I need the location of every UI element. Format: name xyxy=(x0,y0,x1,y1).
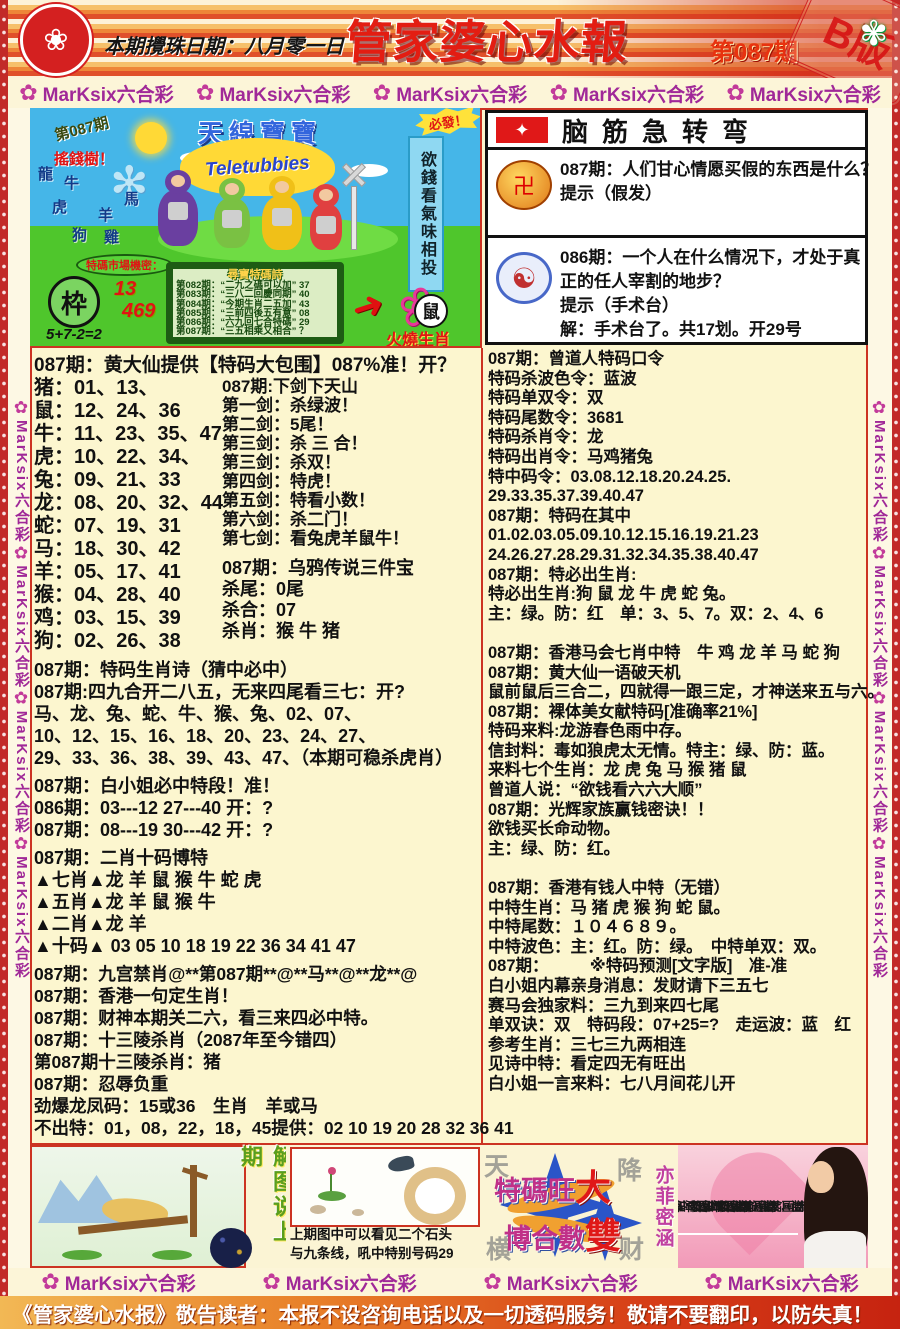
zodiac-row: 鸡：03、15、39 xyxy=(34,607,222,630)
brainteaser-item-086: ☯ 086期：一个人在什么情况下，才处于真 正的任人宰割的地步？ 提示（手术台）… xyxy=(488,238,865,345)
text-line: ▲五肖▲龙 羊 鼠 猴 牛 xyxy=(34,891,480,913)
marksix-item: ✿MarKsix六合彩 xyxy=(726,80,880,107)
text-line: 见诗中特：看定四无有旺出 xyxy=(488,1055,866,1075)
marksix-banner-bottom: ✿MarKsix六合彩 ✿MarKsix六合彩 ✿MarKsix六合彩 ✿Mar… xyxy=(8,1268,892,1296)
seal-circle: 枠 xyxy=(48,276,100,328)
text-line: 特码出肖令：马鸡猪兔 xyxy=(488,448,866,468)
flower-icon: ✿ xyxy=(870,544,889,566)
text-line: 29.33.35.37.39.40.47 xyxy=(488,487,866,507)
teletubby-belly xyxy=(168,202,188,220)
fire-zodiac-label: 火燒生肖 xyxy=(386,326,450,348)
zodiac-row: 狗：02、26、38 xyxy=(34,630,222,653)
teletubby-belly xyxy=(272,208,292,226)
marksix-label-vertical: MarKsix六合彩 xyxy=(13,856,30,979)
marksix-item: ✿MarKsix六合彩 xyxy=(19,80,173,107)
right-flower-border xyxy=(892,0,900,1329)
marksix-label: MarKsix六合彩 xyxy=(43,80,174,107)
hint-line: 提示（手术台） xyxy=(560,294,859,318)
yifei-label-panel: 亦菲密涵 xyxy=(648,1145,678,1268)
crow-line: 杀合：07 xyxy=(222,600,414,621)
text-line: 信封料：毒如狼虎太无情。特主：绿、防：蓝。 xyxy=(488,742,866,762)
hint-line: 提示（假发） xyxy=(560,182,859,206)
marksix-label: MarKsix六合彩 xyxy=(573,80,704,107)
yifei-vertical-title: 亦菲密涵 xyxy=(650,1165,677,1249)
sword-line: 第三剑：杀双！ xyxy=(222,453,414,472)
teletubbies-logo: Teletubbies xyxy=(204,152,310,181)
text-line: 不出特：01，08，22，18，45提供：02 10 19 20 28 32 3… xyxy=(34,1117,480,1139)
text-line: ▲二肖▲龙 羊 xyxy=(34,913,480,935)
zodiac-row: 马：18、30、42 xyxy=(34,538,222,561)
marksix-label-vertical: MarKsix六合彩 xyxy=(871,711,888,834)
zodiac-row: 虎：10、22、34、 xyxy=(34,446,222,469)
windmill-pole xyxy=(351,186,357,250)
starburst-slogan-panel: 天 降 横 财 特碼旺大 博合數雙 xyxy=(482,1145,648,1268)
question-line: 087期：人们甘心情愿买假的东西是什么？ xyxy=(560,158,859,182)
marksix-item: ✿MarKsix六合彩 xyxy=(373,80,527,107)
swastika-medal-icon: 卍 xyxy=(496,160,552,210)
text-line: 赛马会独家料：三九到来四七尾 xyxy=(488,997,866,1017)
text-line: 087期：曾道人特码口令 xyxy=(488,350,866,370)
text-line: 单双诀：双 特码段：07+25=? 走运波：蓝 红 xyxy=(488,1016,866,1036)
rat-zodiac-seal: 鼠 xyxy=(414,294,448,328)
left-column: 087期：黄大仙提供【特码大包围】087%准！开？ 猪：01、13、 鼠：12、… xyxy=(34,350,480,1139)
sword-line: 第二剑：5尾！ xyxy=(222,415,414,434)
marksix-label-vertical: MarKsix六合彩 xyxy=(871,420,888,543)
flower-icon: ✿ xyxy=(870,398,889,420)
slogan-big-char: 雙 xyxy=(585,1215,621,1256)
text-line: 087期：光辉家族赢钱密诀！！ xyxy=(488,801,866,821)
flower-icon: ✿ xyxy=(704,1269,722,1295)
text-line: 29、33、36、38、39、43、47、（本期可稳杀虎肖） xyxy=(34,747,480,769)
text-line: 特码杀波色令：蓝波 xyxy=(488,370,866,390)
woman-face xyxy=(808,1161,834,1193)
crow-line: 杀肖：猴 牛 猪 xyxy=(222,621,414,642)
flag-icon: ✦ xyxy=(496,117,548,143)
zodiac-row: 猪：01、13、 xyxy=(34,377,222,400)
misc-tips-block: 087期：九宫禁肖@**第087期**@**马**@**龙**@ 087期：香港… xyxy=(34,963,480,1139)
teletubby-face xyxy=(225,183,239,195)
zodiac-row: 蛇：07、19、31 xyxy=(34,515,222,538)
text-line: 086期：03---12 27---40 开：? xyxy=(34,797,480,819)
marksix-label: MarKsix六合彩 xyxy=(507,1269,638,1296)
flower-icon: ✿ xyxy=(19,80,37,106)
paper-title: 管家婆心水報 xyxy=(344,6,631,72)
text-line: 087期：白小姐必中特段！准！ xyxy=(34,775,480,797)
flower-icon: ✿ xyxy=(196,80,214,106)
text-line: 特码杀肖令：龙 xyxy=(488,428,866,448)
stone-drawing xyxy=(352,1209,364,1216)
spacer-line xyxy=(488,624,866,644)
text-line: 特码来料:龙游春色雨中存。 xyxy=(488,722,866,742)
tip-number-1: 13 xyxy=(114,278,136,301)
marksix-item: ✿MarKsix六合彩 xyxy=(704,1269,858,1296)
question-line: 正的任人宰割的地步？ xyxy=(560,270,859,294)
brainteaser-title: 脑筋急转弯 xyxy=(562,112,762,149)
zodiac-number-table: 猪：01、13、 鼠：12、24、36 牛：11、23、35、47 虎：10、2… xyxy=(34,377,222,653)
marksix-item: ✿MarKsix六合彩 xyxy=(41,1269,195,1296)
marksix-label: MarKsix六合彩 xyxy=(396,80,527,107)
flower-icon: ✿ xyxy=(41,1269,59,1295)
marksix-label: MarKsix六合彩 xyxy=(219,80,350,107)
text-line: 087期： ※特码预测[文字版] 准-准 xyxy=(488,957,866,977)
teletubby-face xyxy=(171,175,185,187)
caption-line: 与九条线，吼中特别号码29 xyxy=(290,1244,454,1263)
marksix-item: ✿MarKsix六合彩 xyxy=(262,1269,416,1296)
zodiac-swords-row: 猪：01、13、 鼠：12、24、36 牛：11、23、35、47 虎：10、2… xyxy=(34,377,480,653)
marksix-label-vertical: MarKsix六合彩 xyxy=(13,420,30,543)
right-column: 087期：曾道人特码口令 特码杀波色令：蓝波 特码单双令：双 特码尾数令：368… xyxy=(488,350,866,1095)
question-line: 086期：一个人在什么情况下，才处于真 xyxy=(560,246,859,270)
sword-line: 087期:下剑下天山 xyxy=(222,377,414,396)
brainteaser-item-087: 卍 087期：人们甘心情愿买假的东西是什么？ 提示（假发） xyxy=(488,150,865,238)
poem-row: 第087期：“三五相乘又相合” ？ xyxy=(173,327,337,336)
text-line: 白小姐内幕亲身消息：发财请下三五七 xyxy=(488,977,866,997)
woman-shoulder xyxy=(804,1231,866,1268)
spacer-line xyxy=(488,859,866,879)
masthead: ❀ 本期攪珠日期：八月零一日 管家婆心水報 第087期 B版 ✾ xyxy=(8,0,892,78)
swords-and-crow: 087期:下剑下天山 第一剑：杀绿波！ 第二剑：5尾！ 第三剑：杀 三 合！ 第… xyxy=(222,377,414,653)
macau-lotus-icon: ✾ xyxy=(860,14,889,54)
draw-date: 本期攪珠日期：八月零一日 xyxy=(104,30,344,59)
brainteaser-box: ✦ 脑筋急转弯 卍 087期：人们甘心情愿买假的东西是什么？ 提示（假发） ☯ … xyxy=(485,110,868,345)
text-line: 中特生肖：马 猪 虎 猴 狗 蛇 鼠。 xyxy=(488,899,866,919)
yinyang-icon: ☯ xyxy=(496,252,552,304)
text-line: ▲十码▲ 03 05 10 18 19 22 36 34 41 47 xyxy=(34,935,480,957)
teletubbies-dome: Teletubbies xyxy=(180,138,335,196)
marksix-item: ✿MarKsix六合彩 xyxy=(196,80,350,107)
teletubby-yellow xyxy=(262,196,302,250)
slogan-text: 博合數 xyxy=(504,1224,585,1254)
text-line: 087期：二肖十码博特 xyxy=(34,847,480,869)
text-line: 10、12、15、16、18、20、23、24、27、 xyxy=(34,725,480,747)
zodiac-row: 猴：04、28、40 xyxy=(34,584,222,607)
flower-icon: ✿ xyxy=(12,834,31,856)
woman-photo xyxy=(788,1145,868,1268)
text-line: 来料七个生肖：龙 虎 兔 马 猴 猪 鼠 xyxy=(488,761,866,781)
tree-zodiac: 雞 xyxy=(104,226,119,247)
pink-photo-panel: 期：看圖解碼得兔財 期：看圖解碼得兔財 期：看圖解碼得兔財 期：看圖解碼得兔財 xyxy=(678,1145,868,1268)
text-line: 特必出生肖:狗 鼠 龙 牛 虎 蛇 兔。 xyxy=(488,585,866,605)
text-line: 参考生肖：三七三九两相连 xyxy=(488,1036,866,1056)
brainteaser-header: ✦ 脑筋急转弯 xyxy=(488,113,865,150)
text-line: 24.26.27.28.29.31.32.34.35.38.40.47 xyxy=(488,546,866,566)
bird-drawing xyxy=(387,1154,415,1173)
text-line: 087期：十三陵杀肖（2087年至今错四） xyxy=(34,1029,480,1051)
crow-legend-block: 087期：乌鸦传说三件宝 杀尾：0尾 杀合：07 杀肖：猴 牛 猪 xyxy=(222,558,414,642)
text-line: 白小姐一言来料：七八月间花儿开 xyxy=(488,1075,866,1095)
teletubby-belly xyxy=(222,210,242,228)
windmill-icon xyxy=(342,172,364,248)
cartoon-issue: 第087期 xyxy=(52,112,110,146)
footer-notice-text: 《管家婆心水报》敬告读者：本报不设咨询电话以及一切透码服务！敬请不要翻印，以防失… xyxy=(12,1298,873,1328)
text-line: 特码单双令：双 xyxy=(488,389,866,409)
crow-line: 087期：乌鸦传说三件宝 xyxy=(222,558,414,579)
footer-notice-bar: 《管家婆心水报》敬告读者：本报不设咨询电话以及一切透码服务！敬请不要翻印，以防失… xyxy=(0,1296,900,1329)
flower-icon: ✿ xyxy=(726,80,744,106)
teletubbies-cartoon-panel: 第087期 搖錢樹！ ✻ 龍 牛 馬 虎 羊 狗 雞 天線寶寶 Teletubb… xyxy=(30,108,482,348)
marksix-label: MarKsix六合彩 xyxy=(750,80,881,107)
text-line: 087期：黄大仙一语破天机 xyxy=(488,664,866,684)
sword-line: 第五剑：特看小数！ xyxy=(222,491,414,510)
grass-tuft xyxy=(62,1250,102,1260)
teletubby-face xyxy=(275,181,289,193)
marksix-label: MarKsix六合彩 xyxy=(286,1269,417,1296)
text-line: 087期：香港马会七肖中特 牛 鸡 龙 羊 马 蛇 狗 xyxy=(488,644,866,664)
tree-zodiac: 牛 xyxy=(64,172,79,193)
stone-ring-drawing xyxy=(404,1167,466,1225)
marksix-item: ✿MarKsix六合彩 xyxy=(550,80,704,107)
text-line: 特中码令：03.08.12.18.20.24.25. xyxy=(488,468,866,488)
text-line: 特码尾数令：3681 xyxy=(488,409,866,429)
marksix-banner-top: ✿MarKsix六合彩 ✿MarKsix六合彩 ✿MarKsix六合彩 ✿Mar… xyxy=(8,78,892,108)
text-line: 087期：特码生肖诗（猜中必中） xyxy=(34,659,480,681)
last-issue-explain-label: 解图说上期 xyxy=(246,1145,286,1268)
crow-line: 杀尾：0尾 xyxy=(222,579,414,600)
left-flower-border xyxy=(0,0,8,1329)
marksix-label-vertical: MarKsix六合彩 xyxy=(871,566,888,689)
text-line: 087期：香港一句定生肖！ xyxy=(34,985,480,1007)
text-line: 中特波色：主：红。防：绿。 中特单双：双。 xyxy=(488,938,866,958)
zodiac-row: 鼠：12、24、36 xyxy=(34,400,222,423)
speech-bubble: 特碼市場機密： xyxy=(76,254,173,276)
slogan-row-2: 博合數雙 xyxy=(504,1207,621,1259)
zodiac-row: 羊：05、17、41 xyxy=(34,561,222,584)
flower-icon: ✿ xyxy=(12,689,31,711)
marksix-label: MarKsix六合彩 xyxy=(728,1269,859,1296)
text-line: 087期：特必出生肖: xyxy=(488,566,866,586)
marksix-label-vertical: MarKsix六合彩 xyxy=(13,566,30,689)
sword-line: 第三剑：杀 三 合！ xyxy=(222,434,414,453)
section-heading: 087期：黄大仙提供【特码大包围】087%准！开？ xyxy=(34,350,480,377)
tip-number-2: 469 xyxy=(122,300,155,323)
slogan-text: 特碼旺 xyxy=(494,1176,575,1206)
last-issue-picture xyxy=(290,1147,480,1227)
flower-icon: ✿ xyxy=(12,544,31,566)
text-line: 087期：九宫禁肖@**第087期**@**马**@**龙**@ xyxy=(34,963,480,985)
text-line: 劲爆龙凤码：15或36 生肖 羊或马 xyxy=(34,1095,480,1117)
text-line: 087期：特码在其中 xyxy=(488,507,866,527)
text-line: 087期:四九合开二八五，无来四尾看三七：开? xyxy=(34,681,480,703)
slogan-row-1: 特碼旺大 xyxy=(494,1159,611,1211)
stone-drawing xyxy=(310,1205,326,1214)
text-line: 中特尾数：１０４６８９。 xyxy=(488,918,866,938)
column-divider xyxy=(481,348,483,1144)
text-line: 087期：08---19 30---42 开：? xyxy=(34,819,480,841)
flower-icon: ✿ xyxy=(373,80,391,106)
slogan-big-char: 大 xyxy=(575,1167,611,1208)
teletubby-face xyxy=(319,189,333,201)
answer-line: 解：手术台了。共17划。开29号 xyxy=(560,318,859,342)
bg-char: 财 xyxy=(619,1230,644,1266)
burst-badge: 必發！ xyxy=(414,108,482,138)
text-line: 第087期十三陵杀肖：猪 xyxy=(34,1051,480,1073)
picture-caption: 上期图中可以看见二个石头 与九条线，吼中特别号码29 xyxy=(290,1225,454,1263)
flower-icon: ✿ xyxy=(870,834,889,856)
last-issue-picture-panel: 上期图中可以看见二个石头 与九条线，吼中特别号码29 xyxy=(286,1145,482,1268)
bg-char: 降 xyxy=(617,1151,642,1187)
poem-board: 尋寶特碼詩 第082期：“二九之碼可以加” 37 第083期：“三八二回慶同期”… xyxy=(166,262,344,344)
text-line: ▲七肖▲龙 羊 鼠 猴 牛 蛇 虎 xyxy=(34,869,480,891)
text-line: 01.02.03.05.09.10.12.15.16.19.21.23 xyxy=(488,526,866,546)
text-line: 087期：财神本期关二六，看三来四必中特。 xyxy=(34,1007,480,1029)
sword-line: 第一剑：杀绿波！ xyxy=(222,396,414,415)
money-tree-label: 搖錢樹！ xyxy=(54,148,114,169)
special-segment-block: 087期：白小姐必中特段！准！ 086期：03---12 27---40 开：?… xyxy=(34,775,480,841)
sword-line: 第七剑：看兔虎羊鼠牛！ xyxy=(222,529,414,548)
hongkong-emblem-icon: ❀ xyxy=(20,4,92,76)
teletubby-green xyxy=(214,198,250,248)
teletubby-red xyxy=(310,204,342,250)
tree-zodiac: 狗 xyxy=(72,224,87,245)
zodiac-row: 龙：08、20、32、44 xyxy=(34,492,222,515)
text-line: 087期：裸体美女献特码[准确率21%] xyxy=(488,703,866,723)
sword-line: 第四剑：特虎！ xyxy=(222,472,414,491)
dark-sphere-graphic xyxy=(210,1228,252,1268)
marksix-label: MarKsix六合彩 xyxy=(65,1269,196,1296)
flower-icon: ✿ xyxy=(12,398,31,420)
text-line: 欲钱买长命动物。 xyxy=(488,820,866,840)
sun-icon xyxy=(135,122,167,154)
sword-line: 第六剑：杀二门！ xyxy=(222,510,414,529)
zodiac-poem-block: 087期：特码生肖诗（猜中必中） 087期:四九合开二八五，无来四尾看三七：开?… xyxy=(34,659,480,769)
newspaper-page: ❀ 本期攪珠日期：八月零一日 管家婆心水報 第087期 B版 ✾ ✿MarKsi… xyxy=(0,0,900,1329)
marksix-label-vertical: MarKsix六合彩 xyxy=(871,856,888,979)
flower-icon: ✿ xyxy=(262,1269,280,1295)
two-zodiac-ten-code-block: 087期：二肖十码博特 ▲七肖▲龙 羊 鼠 猴 牛 蛇 虎 ▲五肖▲龙 羊 鼠 … xyxy=(34,847,480,957)
text-line: 马、龙、兔、蛇、牛、猴、兔、02、07、 xyxy=(34,703,480,725)
text-line: 鼠前鼠后三合二，四就得一跟三定，才神送来五与六。 xyxy=(488,683,866,703)
tree-zodiac: 虎 xyxy=(52,196,67,217)
flower-icon: ✿ xyxy=(483,1269,501,1295)
marksix-item: ✿MarKsix六合彩 xyxy=(483,1269,637,1296)
flower-leaves xyxy=(318,1191,346,1201)
text-line: 曾道人说：“欲钱看六六大顺” xyxy=(488,781,866,801)
text-line: 主：绿、防：红。 xyxy=(488,840,866,860)
text-line: 主：绿。防：红 单：3、5、7。双：2、4、6 xyxy=(488,605,866,625)
tree-zodiac: 羊 xyxy=(98,204,113,225)
caption-line: 上期图中可以看见二个石头 xyxy=(290,1225,454,1244)
rotated-text-column: 期：看圖解碼得兔財 xyxy=(764,1149,786,1261)
grass-tuft xyxy=(152,1250,192,1260)
text-line: 087期：香港有钱人中特（无错） xyxy=(488,879,866,899)
zodiac-row: 牛：11、23、35、47 xyxy=(34,423,222,446)
marksix-label-vertical: MarKsix六合彩 xyxy=(13,711,30,834)
flower-icon: ✿ xyxy=(550,80,568,106)
blue-scroll-banner: 欲錢看氣味相投 xyxy=(408,136,444,292)
zodiac-row: 兔：09、21、33 xyxy=(34,469,222,492)
teletubby-belly xyxy=(316,216,336,234)
tree-zodiac: 龍 xyxy=(38,163,53,184)
teletubby-purple xyxy=(158,190,198,246)
text-line: 087期：忍辱负重 xyxy=(34,1073,480,1095)
tip-formula: 5+7-2=2 xyxy=(46,326,102,343)
blue-banner-text: 欲錢看氣味相投 xyxy=(414,151,438,277)
tree-zodiac: 馬 xyxy=(124,188,139,209)
